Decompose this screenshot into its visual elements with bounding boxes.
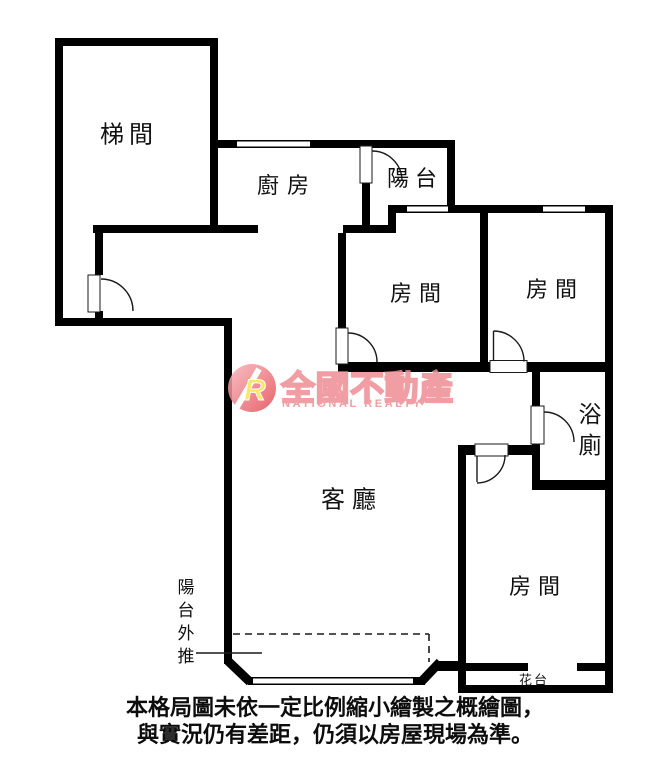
label-bedroom-bottom: 房間: [509, 569, 567, 601]
label-flower-stand: 花台: [519, 670, 549, 689]
watermark: R 全國不動產 NATIONAL REALTY: [228, 364, 454, 412]
wall-chamfer-left: [228, 661, 250, 682]
label-bedroom-mid: 房間: [390, 276, 448, 308]
label-bedroom-topright: 房間: [526, 272, 584, 304]
door-arc-bedroom-mid: [348, 333, 377, 362]
door-arc-bedroom-bottom: [477, 455, 505, 483]
label-living-room: 客廳: [321, 480, 383, 515]
wall-midroom-left: [338, 233, 346, 330]
label-balcony: 陽台: [387, 161, 443, 193]
wall-entry-bottom: [55, 318, 232, 326]
label-kitchen: 廚房: [257, 168, 317, 200]
door-gap-bedroom-bottom: [475, 444, 508, 456]
wall-left-outer: [55, 38, 63, 326]
window-bedroom-topright: [543, 207, 585, 212]
door-leaf-bathroom: [531, 406, 544, 444]
door-leaf-kitchen-balcony: [360, 146, 372, 183]
wall-entry-upper: [95, 233, 103, 275]
wall-stairwell-right: [210, 38, 218, 233]
door-arc-entry: [101, 279, 133, 311]
wall-right-outer: [605, 205, 613, 693]
watermark-brand-en: NATIONAL REALTY: [282, 398, 423, 410]
wall-flower-inner-a: [458, 663, 528, 671]
disclaimer-line1: 本格局圖未依一定比例縮小繪製之概繪圖，: [15, 694, 655, 721]
door-leaf-entry: [88, 275, 100, 312]
watermark-logo-letter: R: [244, 374, 266, 407]
wall-living-left: [224, 318, 232, 664]
wall-step-horizontal: [343, 225, 396, 233]
floorplan-page: R 全國不動產 NATIONAL REALTY 梯間 廚房 陽台 房間 房間 浴…: [0, 0, 671, 770]
wall-top: [55, 38, 218, 46]
disclaimer-text: 本格局圖未依一定比例縮小繪製之概繪圖， 與實況仍有差距，仍須以房屋現場為準。: [15, 694, 655, 748]
doors: [88, 146, 574, 483]
wall-chamfer-right: [421, 662, 440, 682]
window-balcony-bedroom: [407, 207, 448, 212]
window-balcony-bottom: [253, 679, 413, 684]
window-kitchen-top: [237, 142, 310, 147]
disclaimer-line2: 與實況仍有差距，仍須以房屋現場為準。: [15, 721, 655, 748]
wall-bedroom3-left: [458, 445, 466, 693]
wall-balcony-right: [447, 140, 455, 213]
label-stairwell: 梯間: [100, 115, 158, 150]
wall-bath-left-upper: [532, 372, 540, 408]
wall-rooms-bottom-right: [527, 362, 613, 372]
door-gap-bedroom-topright: [490, 361, 527, 373]
door-arc-bedroom-topright: [494, 331, 525, 362]
wall-flower-inner-b: [577, 663, 613, 671]
wall-bath-bottom: [532, 480, 613, 490]
wall-bedroom3-top-b: [508, 445, 535, 455]
wall-corridor-top: [93, 225, 258, 233]
label-bathroom: 浴廁: [570, 402, 604, 464]
label-balcony-pushed-out: 陽台外推: [172, 578, 197, 670]
door-leaf-bedroom-mid: [336, 328, 348, 364]
wall-rooms-divider: [480, 213, 488, 362]
